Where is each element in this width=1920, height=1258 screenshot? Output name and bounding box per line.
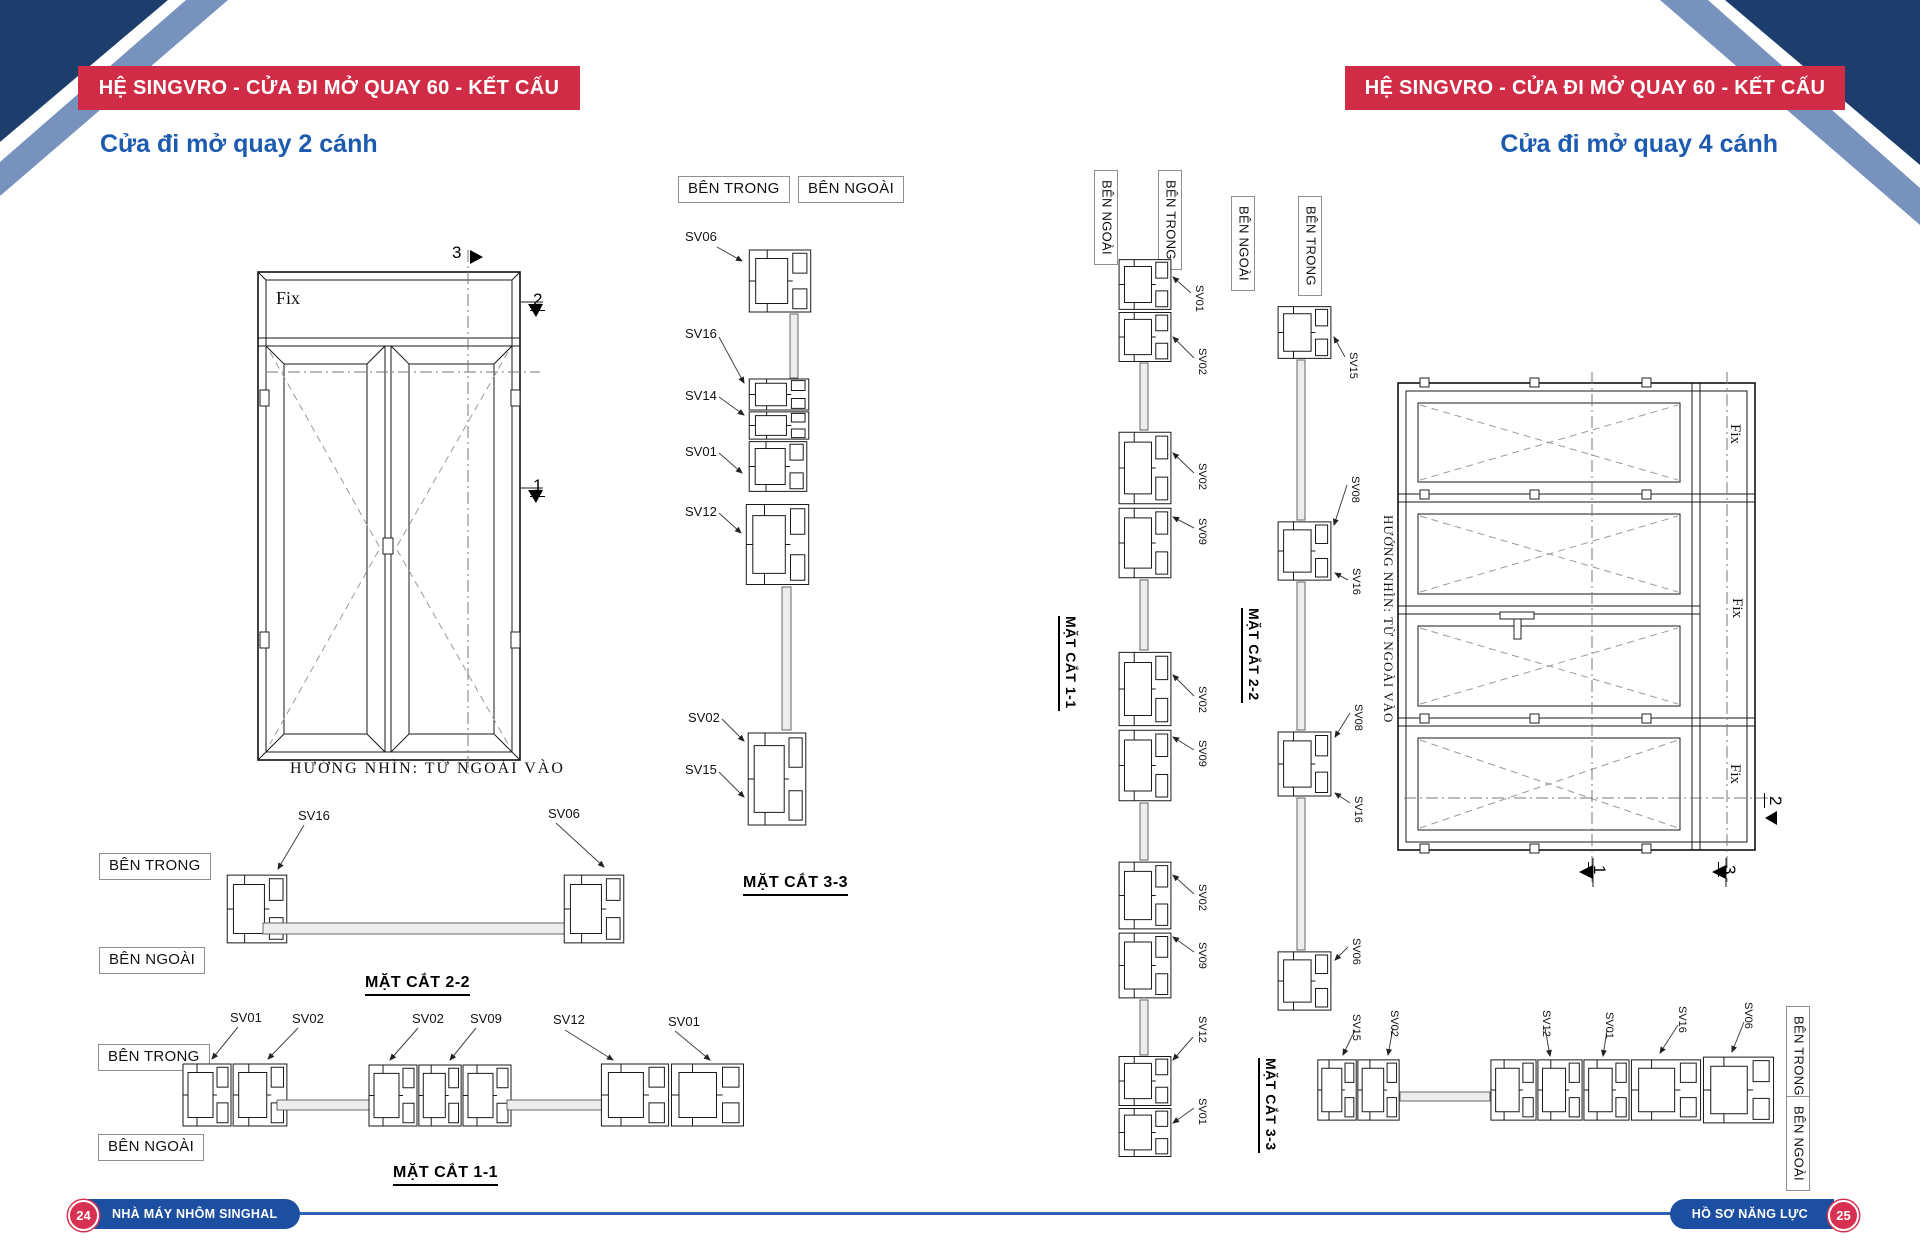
footer-divider-line: [82, 1212, 1858, 1215]
profile-label: SV01: [1193, 285, 1205, 312]
section-2-2-caption: MẶT CẮT 2-2: [1241, 608, 1262, 703]
view-direction-caption: HƯỚNG NHÌN: TỪ NGOÀI VÀO: [1380, 515, 1396, 723]
section-marker-1: 1: [530, 476, 545, 497]
profile-label: SV06: [1742, 1002, 1754, 1029]
profile-label: SV12: [553, 1012, 585, 1027]
profile-label: SV02: [1388, 1010, 1400, 1037]
section-1-1-modules: [1119, 260, 1171, 1157]
profile-label: SV02: [1196, 348, 1208, 375]
profile-label: SV02: [292, 1011, 324, 1026]
profile-label: SV06: [685, 229, 717, 244]
right-page-banner: HỆ SINGVRO - CỬA ĐI MỞ QUAY 60 - KẾT CẤU: [1345, 66, 1845, 110]
profile-label: SV02: [412, 1011, 444, 1026]
profile-label: SV06: [1350, 938, 1362, 965]
profile-label: SV12: [1540, 1010, 1552, 1037]
profile-label: SV09: [470, 1011, 502, 1026]
profile-label: SV08: [1349, 476, 1361, 503]
section-marker-3: 3: [1718, 862, 1739, 877]
profile-label: SV09: [1196, 518, 1208, 545]
section-3-3-caption: MẶT CẮT 3-3: [743, 874, 848, 896]
section-3-3-caption: MẶT CẮT 3-3: [1258, 1058, 1279, 1153]
door-frame: [1398, 383, 1755, 850]
profile-label: SV08: [1352, 704, 1364, 731]
door-leaves: [1418, 378, 1680, 853]
profile-label: SV15: [685, 762, 717, 777]
profile-label: SV01: [685, 444, 717, 459]
section-2-2-caption: MẶT CẮT 2-2: [365, 974, 470, 996]
right-door-elevation-drawing: [1380, 360, 1810, 905]
right-page-title: Cửa đi mở quay 4 cánh: [1420, 130, 1778, 159]
profile-label: SV01: [1603, 1012, 1615, 1039]
profile-label: SV01: [1196, 1098, 1208, 1125]
section-marker-1: 1: [1588, 862, 1609, 877]
profile-modules: [183, 1064, 744, 1126]
door-leaves: [260, 346, 520, 752]
profile-modules: [227, 875, 624, 943]
profile-modules: [746, 250, 810, 825]
footer-left-label: NHÀ MÁY NHÔM SINGHAL: [86, 1199, 300, 1229]
profile-label: SV14: [685, 388, 717, 403]
section-cut-lines: [266, 250, 543, 775]
section-marker-2: 2: [1764, 793, 1785, 808]
leader-lines: [212, 1027, 710, 1060]
fix-panel-label: Fix: [1726, 424, 1743, 444]
outside-label-box: BÊN NGOÀI: [798, 176, 904, 203]
outside-label-box: BÊN NGOÀI: [1786, 1096, 1810, 1191]
profile-label: SV16: [298, 808, 330, 823]
profile-label: SV15: [1347, 352, 1359, 379]
inside-label-box: BÊN TRONG: [99, 853, 211, 880]
profile-label: SV12: [1196, 1016, 1208, 1043]
inside-label-box: BÊN TRONG: [678, 176, 790, 203]
profile-label: SV09: [1196, 740, 1208, 767]
profile-label: SV15: [1350, 1014, 1362, 1041]
profile-label: SV06: [548, 806, 580, 821]
left-page-number-badge: 24: [68, 1200, 99, 1231]
section-2-2-drawing: [200, 805, 660, 985]
catalog-page: HỆ SINGVRO - CỬA ĐI MỞ QUAY 60 - KẾT CẤU…: [0, 0, 1920, 1258]
fix-panel-label: Fix: [1726, 764, 1743, 784]
fix-panel-label: Fix: [1728, 598, 1745, 618]
right-page-number-badge: 25: [1828, 1200, 1859, 1231]
inside-label-box: BÊN TRONG: [1786, 1006, 1810, 1106]
leader-lines: [717, 247, 744, 797]
profile-label: SV16: [685, 326, 717, 341]
profile-label: SV01: [230, 1010, 262, 1025]
profile-label: SV02: [1196, 463, 1208, 490]
profile-label: SV16: [1350, 568, 1362, 595]
profile-label: SV12: [685, 504, 717, 519]
left-page-banner: HỆ SINGVRO - CỬA ĐI MỞ QUAY 60 - KẾT CẤU: [78, 66, 580, 110]
view-direction-caption: HƯỚNG NHÌN: TỪ NGOÀI VÀO: [290, 760, 565, 778]
corner-decoration-right: [1620, 0, 1920, 230]
outside-label-box: BÊN NGOÀI: [99, 947, 205, 974]
door-frame: [258, 272, 520, 760]
profile-modules: [1318, 1057, 1774, 1123]
footer-right-label: HỒ SƠ NĂNG LỰC: [1670, 1199, 1834, 1229]
section-cut-lines: [1404, 372, 1782, 887]
profile-label: SV02: [688, 710, 720, 725]
profile-label: SV02: [1196, 686, 1208, 713]
profile-label: SV16: [1352, 796, 1364, 823]
profile-label: SV02: [1196, 884, 1208, 911]
left-door-elevation-drawing: [240, 240, 570, 800]
section-2-2-modules: [1278, 307, 1331, 1010]
profile-label: SV01: [668, 1014, 700, 1029]
profile-label: SV09: [1196, 942, 1208, 969]
leader-lines: [278, 823, 604, 869]
left-page-title: Cửa đi mở quay 2 cánh: [100, 130, 378, 159]
fix-panel-label: Fix: [276, 288, 300, 309]
section-marker-3: 3: [452, 243, 461, 263]
section-1-1-caption: MẶT CẮT 1-1: [393, 1164, 498, 1186]
section-marker-2: 2: [530, 290, 545, 311]
profile-label: SV16: [1676, 1006, 1688, 1033]
section-1-1-caption: MẶT CẮT 1-1: [1058, 616, 1079, 711]
